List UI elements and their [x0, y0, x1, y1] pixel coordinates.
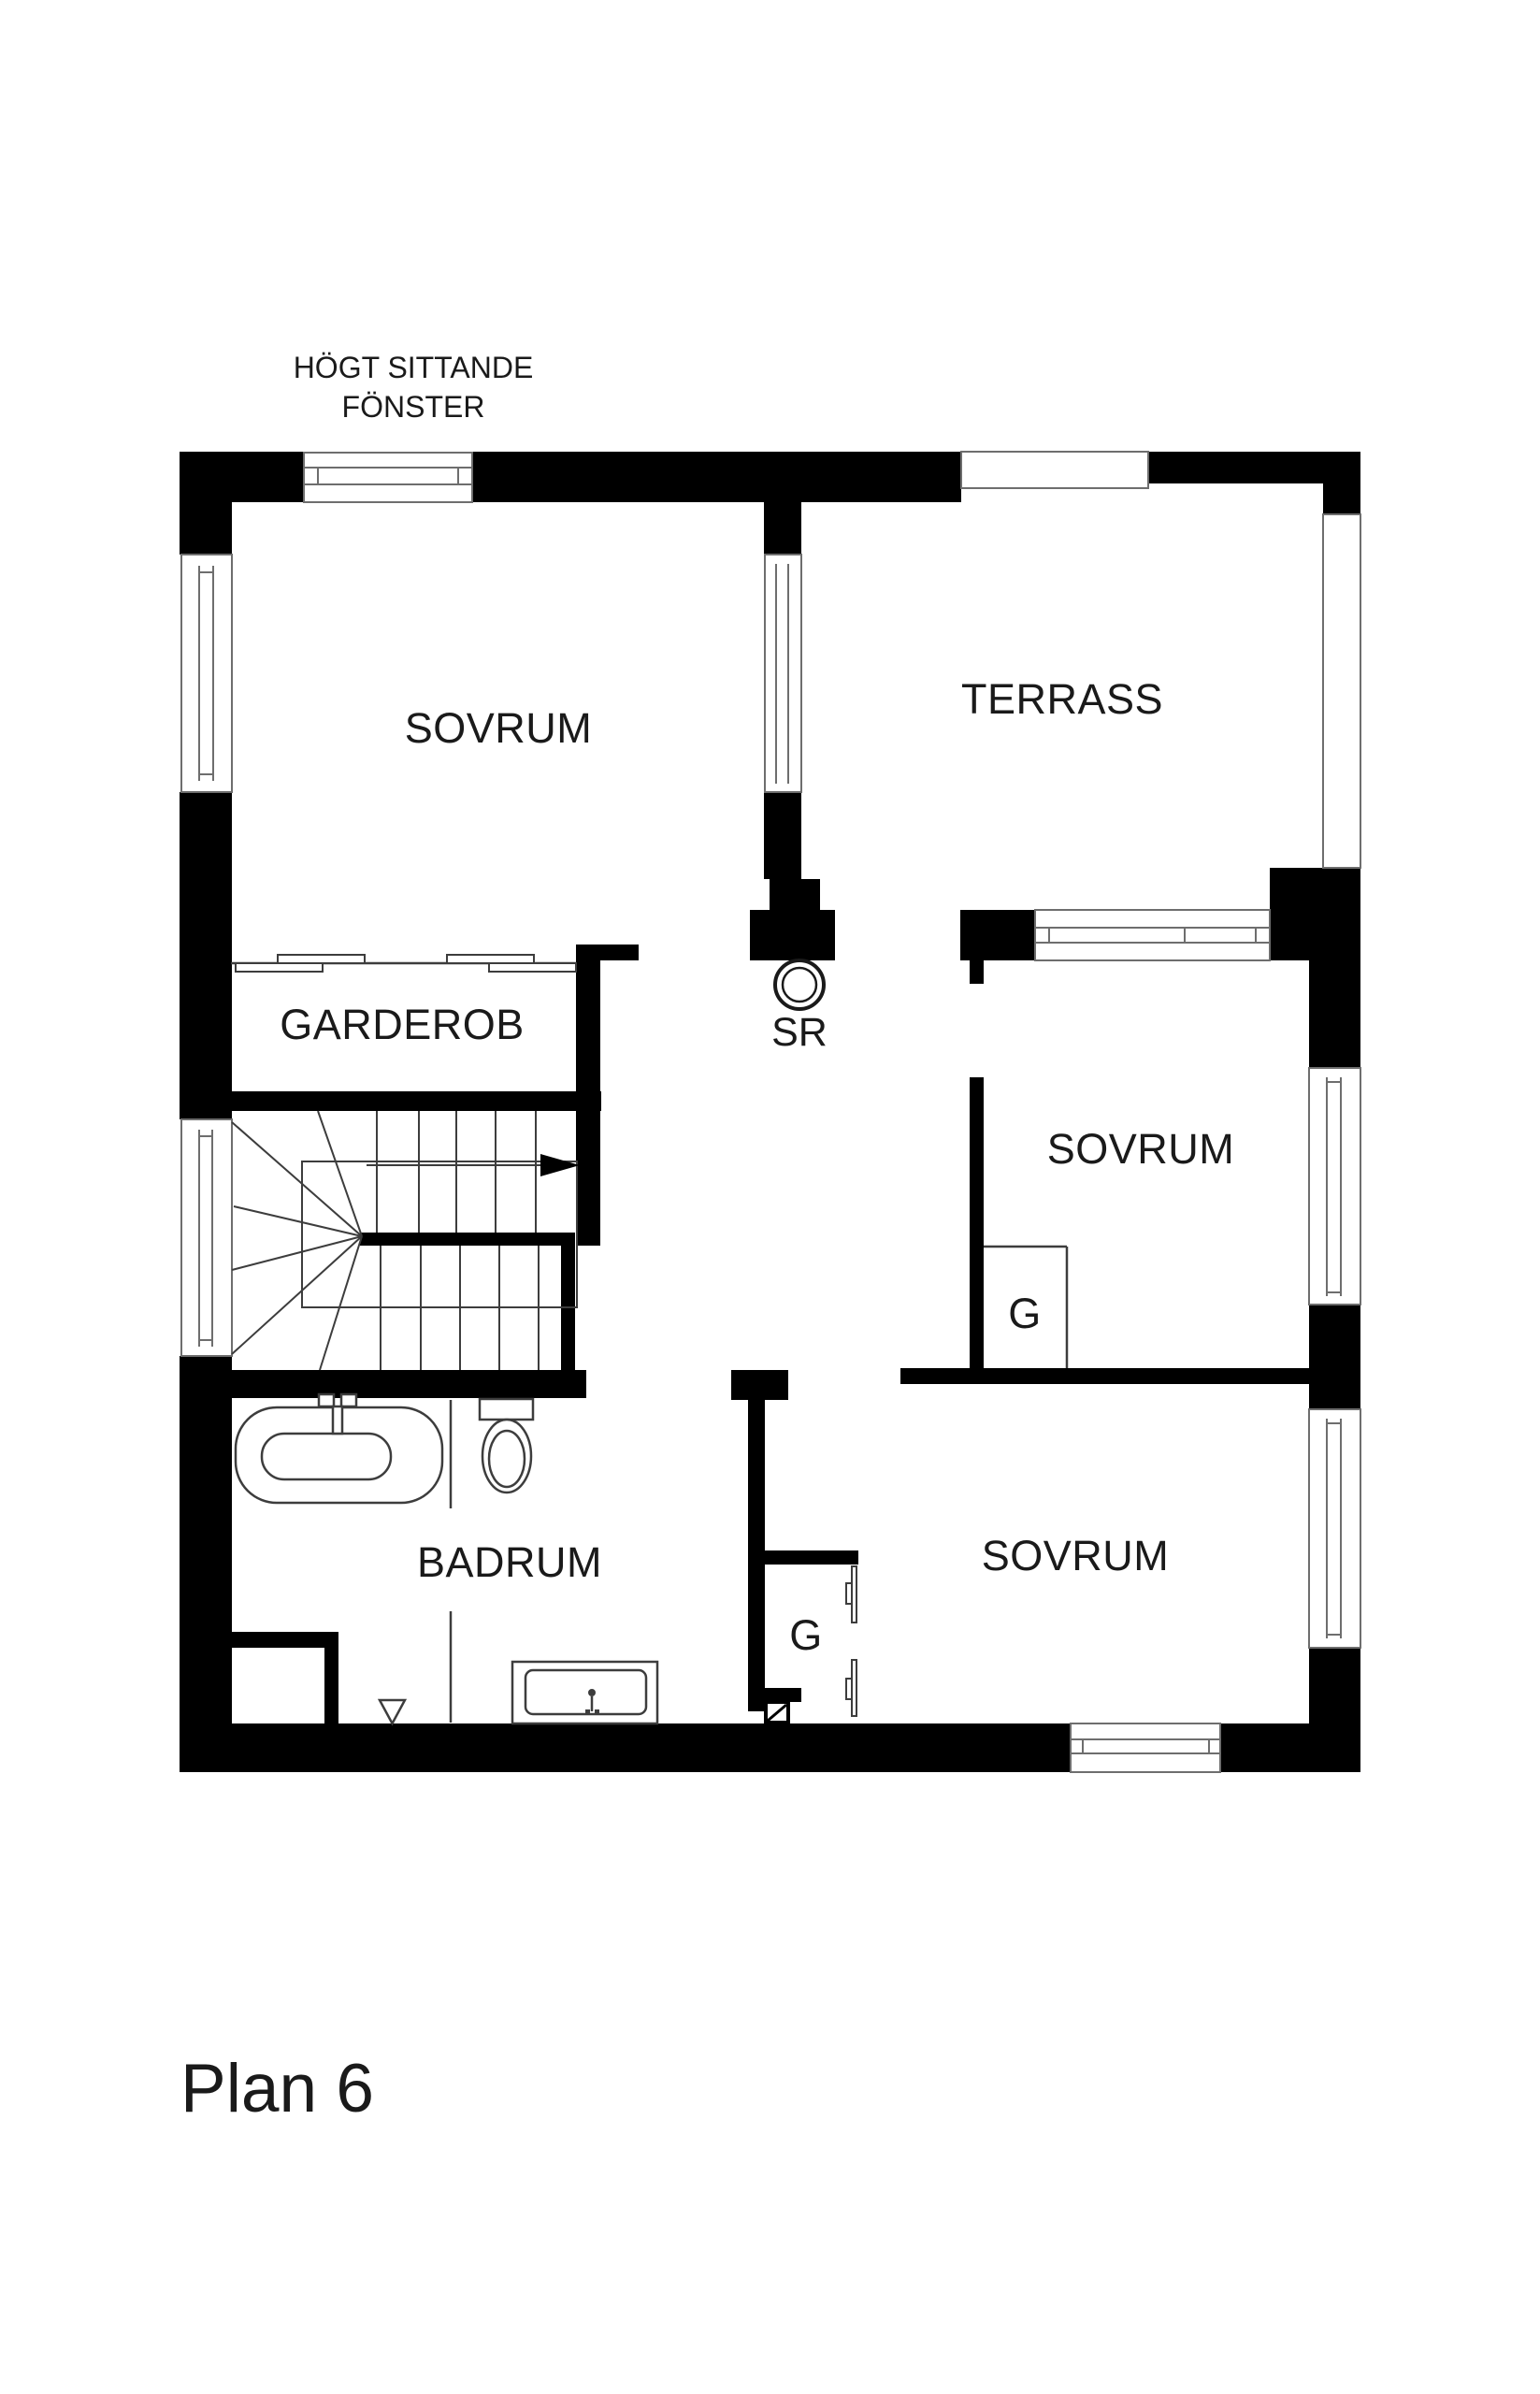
smoke-shaft-symbol [775, 960, 824, 1009]
wall-segment [765, 1688, 801, 1702]
wall-segment [324, 1648, 338, 1723]
wall-segment [180, 502, 232, 555]
room-label-bedroom-bottom: SOVRUM [982, 1532, 1170, 1579]
wall-segment [900, 1368, 1309, 1384]
wall-segment [226, 1370, 586, 1398]
wall-segment [180, 1356, 232, 1772]
wall-segment [1270, 868, 1360, 960]
room-label-bedroom-top: SOVRUM [405, 704, 593, 752]
windows [181, 452, 1360, 1772]
room-label-bathroom: BADRUM [417, 1538, 602, 1586]
room-label-terrace: TERRASS [961, 675, 1163, 723]
room-label-bedroom-mid: SOVRUM [1047, 1125, 1235, 1173]
floorplan-drawing: HÖGT SITTANDE FÖNSTER SOVRUM TERRASS GAR… [0, 0, 1540, 2394]
closet-door-jamb [846, 1583, 852, 1604]
chimney-shaft [770, 879, 820, 910]
sliding-door-icon [236, 963, 323, 972]
wall-segment [229, 1632, 338, 1648]
wall-segment [1309, 960, 1360, 1068]
stair-direction-arrow [367, 1154, 580, 1176]
chimney-footing [750, 910, 835, 960]
sink-icon [512, 1662, 657, 1723]
wall-segment [180, 452, 304, 502]
sliding-door-icon [447, 955, 534, 963]
wall-segment [180, 792, 232, 1119]
wall-segment [970, 960, 984, 984]
floorplan-page: HÖGT SITTANDE FÖNSTER SOVRUM TERRASS GAR… [0, 0, 1540, 2394]
wall-segment [472, 452, 961, 502]
wall-segment [1220, 1723, 1360, 1772]
wall-segment [764, 792, 801, 879]
partitions [231, 955, 1067, 1723]
window-right-mid [1309, 1068, 1360, 1305]
plan-title: Plan 6 [180, 2051, 374, 2127]
shower-drain-icon [380, 1700, 405, 1723]
window-top [304, 453, 472, 502]
wall-segment [765, 1550, 858, 1565]
wall-segment [748, 1400, 765, 1711]
wall-segment [731, 1370, 788, 1400]
labels: HÖGT SITTANDE FÖNSTER SOVRUM TERRASS GAR… [180, 351, 1234, 2127]
window-left-lower [181, 1119, 232, 1356]
wall-segment [970, 1077, 984, 1384]
sliding-door-icon [489, 963, 576, 972]
terrace-opening [961, 452, 1148, 488]
window-right-lower [1309, 1409, 1360, 1648]
window-bedroom-terrace [765, 555, 801, 792]
closet-door-jamb [846, 1679, 852, 1699]
wall-segment [960, 910, 1035, 960]
wall-segment [1309, 1305, 1360, 1409]
wall-segment [576, 945, 639, 960]
annotation-line2: FÖNSTER [342, 390, 485, 424]
wall-segment [180, 1723, 1071, 1772]
toilet-icon [480, 1399, 533, 1493]
wall-segment [1323, 452, 1360, 514]
wall-segment [231, 1091, 601, 1111]
marker-closet-mid: G [1008, 1290, 1042, 1337]
window-left-upper [181, 555, 232, 792]
marker-closet-bottom: G [789, 1611, 823, 1659]
terrace-railing [1323, 514, 1360, 868]
room-label-wardrobe: GARDEROB [280, 1001, 525, 1048]
sliding-door-icon [278, 955, 365, 963]
window-bottom [1071, 1723, 1220, 1772]
window-terrace-bedroom-mid [1035, 910, 1270, 960]
stair-spine-wall [360, 1233, 575, 1246]
annotation-line1: HÖGT SITTANDE [294, 351, 534, 384]
marker-sr: SR [771, 1010, 828, 1055]
bathtub-icon [236, 1394, 442, 1503]
wall-segment [764, 502, 801, 555]
shaft-symbol [766, 1702, 788, 1723]
